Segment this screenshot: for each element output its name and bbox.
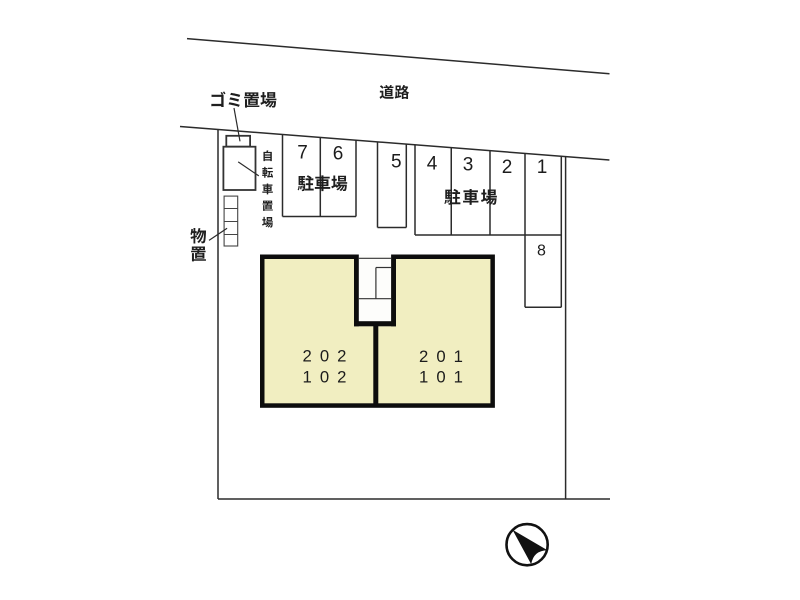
svg-text:2: 2 (303, 347, 312, 366)
svg-text:0: 0 (436, 368, 445, 387)
svg-text:0: 0 (320, 347, 329, 366)
svg-text:7: 7 (297, 142, 308, 163)
svg-text:4: 4 (427, 153, 438, 174)
svg-text:1: 1 (303, 368, 312, 387)
svg-text:2: 2 (419, 347, 428, 366)
svg-text:1: 1 (537, 157, 548, 178)
svg-text:2: 2 (337, 347, 346, 366)
svg-text:0: 0 (436, 347, 445, 366)
svg-text:1: 1 (454, 368, 463, 387)
svg-text:3: 3 (463, 155, 474, 176)
svg-text:8: 8 (537, 242, 546, 259)
svg-text:1: 1 (419, 368, 428, 387)
svg-text:6: 6 (333, 143, 344, 164)
svg-text:0: 0 (320, 368, 329, 387)
svg-text:2: 2 (337, 368, 346, 387)
svg-text:5: 5 (391, 151, 402, 172)
svg-text:2: 2 (502, 157, 513, 178)
svg-text:1: 1 (454, 347, 463, 366)
